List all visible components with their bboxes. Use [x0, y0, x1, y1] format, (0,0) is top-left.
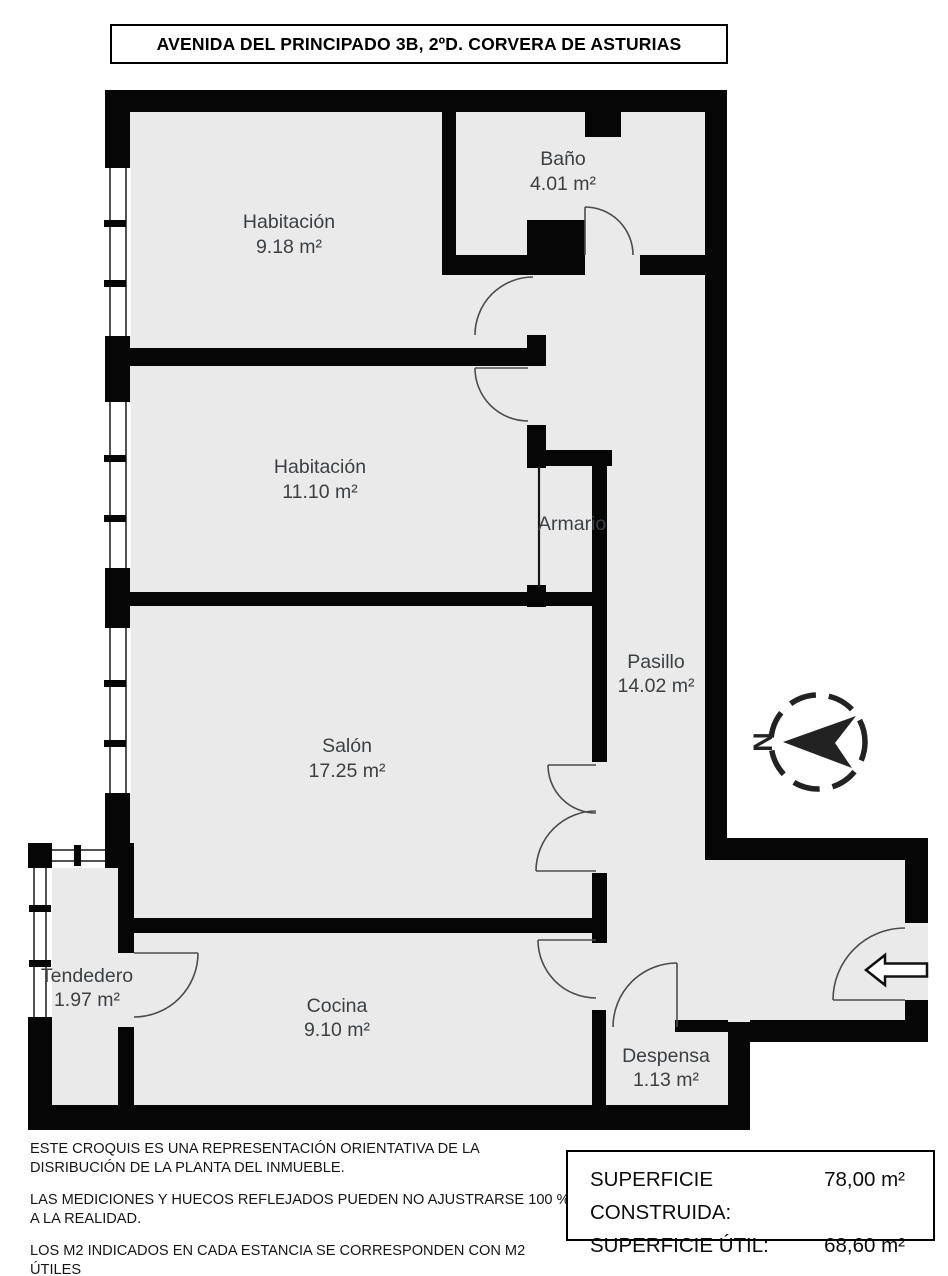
wall [105, 90, 727, 112]
wall [905, 838, 928, 923]
wall [118, 1027, 134, 1113]
wall [527, 335, 546, 366]
window-tick [104, 280, 126, 287]
summary-row-construida: SUPERFICIE CONSTRUIDA: 78,00 m² [590, 1163, 905, 1229]
room-label-habitacion1: Habitación [243, 211, 335, 233]
construida-label: SUPERFICIE CONSTRUIDA: [590, 1163, 824, 1229]
wall [640, 255, 705, 275]
window-tick [104, 680, 126, 687]
construida-value: 78,00 m² [824, 1163, 905, 1196]
wall [28, 1105, 750, 1130]
compass-needle-icon [783, 716, 856, 768]
wall [105, 336, 130, 402]
disclaimer-line-1: ESTE CROQUIS ES UNA REPRESENTACIÓN ORIEN… [30, 1140, 570, 1177]
room-label-armario: Armario [538, 513, 606, 535]
util-label: SUPERFICIE ÚTIL: [590, 1229, 769, 1262]
floor-plan-drawing: Habitación 9.18 m² Baño 4.01 m² Habitaci… [0, 0, 948, 1276]
room-label-habitacion2: Habitación [274, 456, 366, 478]
shaft [585, 112, 621, 137]
disclaimer-line-3: LOS M2 INDICADOS EN CADA ESTANCIA SE COR… [30, 1242, 570, 1276]
window-tick [104, 515, 126, 522]
apartment-floor [28, 90, 928, 1130]
room-area-tendedero: 1.97 m² [54, 989, 121, 1011]
wall [110, 592, 607, 606]
wall [28, 843, 52, 868]
window [103, 402, 131, 568]
room-area-cocina: 9.10 m² [304, 1019, 371, 1041]
room-label-despensa: Despensa [622, 1045, 710, 1067]
room-label-cocina: Cocina [307, 995, 368, 1017]
room-area-habitacion1: 9.18 m² [256, 236, 323, 258]
wall [675, 1020, 728, 1032]
wall [118, 918, 607, 933]
room-label-salon: Salón [322, 735, 372, 757]
room-label-pasillo: Pasillo [627, 651, 685, 673]
window-tick [29, 905, 51, 912]
disclaimer-line-2: LAS MEDICIONES Y HUECOS REFLEJADOS PUEDE… [30, 1191, 570, 1228]
compass-north-label: N [748, 732, 778, 752]
window-tick [104, 455, 126, 462]
room-area-pasillo: 14.02 m² [618, 675, 695, 697]
room-area-habitacion2: 11.10 m² [282, 481, 358, 503]
wall [28, 1017, 52, 1130]
wall [592, 458, 607, 762]
wall [592, 1010, 606, 1130]
surface-summary-box: SUPERFICIE CONSTRUIDA: 78,00 m² SUPERFIC… [566, 1150, 935, 1241]
summary-row-util: SUPERFICIE ÚTIL: 68,60 m² [590, 1229, 905, 1262]
window [103, 628, 131, 793]
util-value: 68,60 m² [824, 1229, 905, 1262]
window [28, 868, 52, 1017]
wall [105, 90, 130, 168]
compass: N [748, 695, 865, 789]
wall [105, 793, 130, 868]
room-area-despensa: 1.13 m² [633, 1069, 700, 1091]
wall [118, 860, 134, 953]
wall [750, 1020, 928, 1042]
wall [110, 348, 546, 366]
wall [727, 838, 905, 860]
disclaimer: ESTE CROQUIS ES UNA REPRESENTACIÓN ORIEN… [30, 1140, 570, 1276]
window [103, 168, 131, 336]
wall [527, 220, 585, 275]
wall [442, 112, 456, 262]
window-tick [104, 740, 126, 747]
window-tick [104, 220, 126, 227]
floor-plan-page: AVENIDA DEL PRINCIPADO 3B, 2ºD. CORVERA … [0, 0, 948, 1276]
room-area-bano: 4.01 m² [530, 173, 597, 195]
room-label-tendedero: Tendedero [41, 965, 133, 987]
window-tick [74, 845, 81, 866]
room-label-bano: Baño [540, 148, 586, 170]
wall [705, 90, 727, 860]
room-area-salon: 17.25 m² [309, 760, 386, 782]
